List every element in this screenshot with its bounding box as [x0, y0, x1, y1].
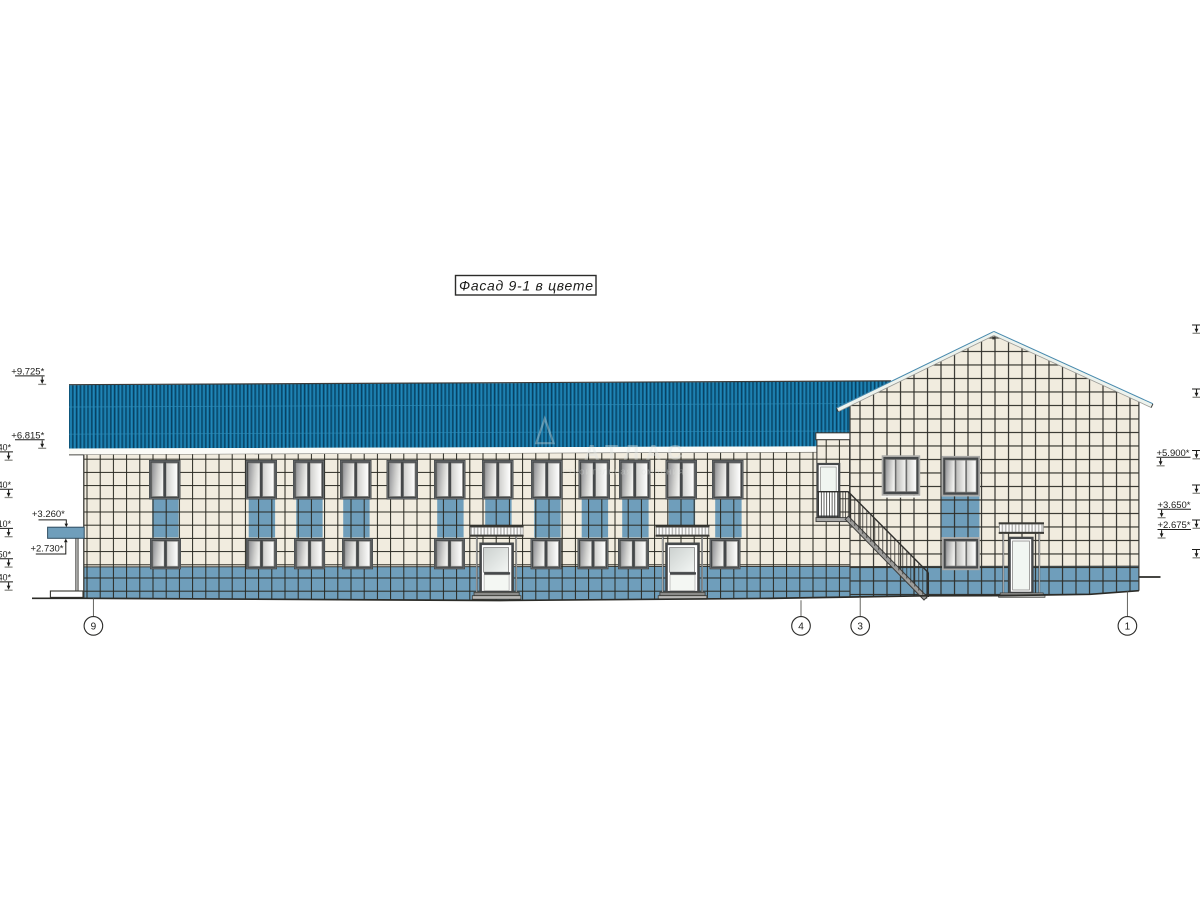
svg-text:40*: 40*	[0, 573, 12, 583]
svg-text:9: 9	[91, 622, 97, 633]
svg-text:АТЛАС: АТЛАС	[584, 441, 689, 465]
svg-text:3: 3	[857, 622, 863, 633]
svg-text:+2.730*: +2.730*	[30, 543, 63, 554]
svg-text:4: 4	[798, 622, 804, 633]
svg-text:40*: 40*	[0, 443, 12, 453]
svg-text:+3.260*: +3.260*	[32, 509, 65, 520]
svg-text:строительная компания: строительная компания	[563, 467, 685, 478]
svg-text:40*: 40*	[0, 480, 12, 490]
svg-text:1: 1	[1125, 622, 1131, 633]
svg-text:50*: 50*	[0, 550, 12, 560]
svg-text:Фасад 9-1 в цвете: Фасад 9-1 в цвете	[459, 278, 593, 294]
svg-text:10*: 10*	[0, 519, 12, 529]
